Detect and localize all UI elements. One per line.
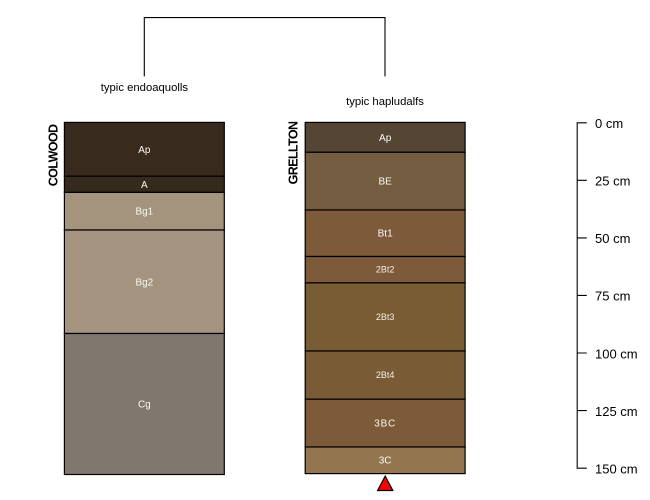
svg-text:2Bt2: 2Bt2 — [376, 265, 395, 275]
svg-text:2Bt3: 2Bt3 — [376, 312, 395, 322]
svg-text:100 cm: 100 cm — [595, 346, 638, 361]
svg-text:A: A — [141, 180, 148, 191]
svg-text:3BC: 3BC — [374, 419, 396, 430]
svg-text:Ap: Ap — [379, 133, 392, 144]
svg-text:Bg1: Bg1 — [135, 207, 153, 218]
svg-text:3C: 3C — [379, 456, 392, 467]
svg-text:typic endoaquolls: typic endoaquolls — [101, 82, 189, 94]
svg-text:50 cm: 50 cm — [595, 231, 630, 246]
svg-text:Ap: Ap — [138, 145, 151, 156]
svg-text:Cg: Cg — [138, 399, 151, 410]
svg-text:typic hapludalfs: typic hapludalfs — [346, 96, 424, 108]
svg-text:0 cm: 0 cm — [595, 116, 623, 131]
svg-text:2Bt4: 2Bt4 — [376, 370, 395, 380]
svg-text:75 cm: 75 cm — [595, 289, 630, 304]
svg-text:25 cm: 25 cm — [595, 174, 630, 189]
svg-text:GRELLTON: GRELLTON — [287, 121, 301, 184]
svg-text:Bt1: Bt1 — [378, 229, 393, 240]
svg-text:125 cm: 125 cm — [595, 404, 638, 419]
svg-text:COLWOOD: COLWOOD — [47, 124, 61, 186]
svg-text:BE: BE — [378, 177, 392, 188]
svg-text:Bg2: Bg2 — [135, 277, 153, 288]
svg-text:150 cm: 150 cm — [595, 462, 638, 477]
